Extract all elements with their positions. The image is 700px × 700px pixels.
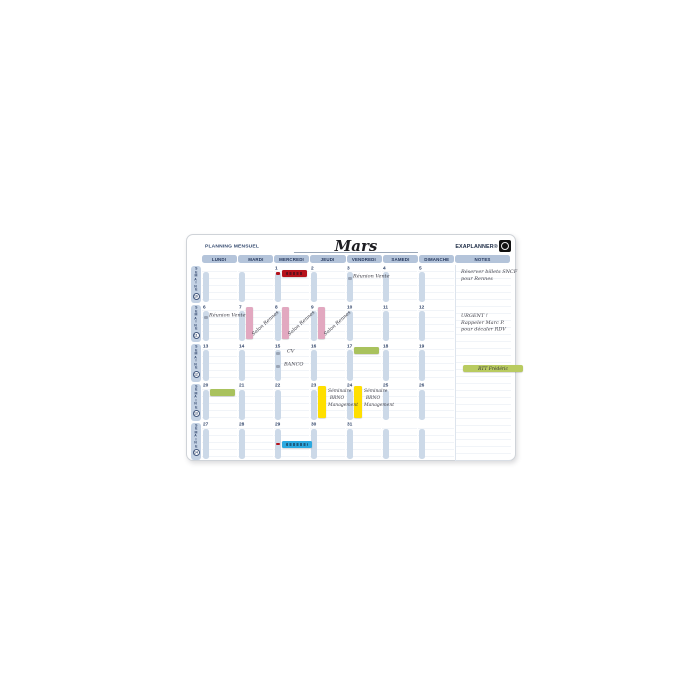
magnet-dot [276,365,280,368]
magnet-dot [276,352,280,355]
day-cell: 9Salon Rennes [310,304,345,342]
week-row: SEMAINE116Réunion Vente7Salon Rennes8Sal… [191,304,454,342]
day-cell [418,422,453,460]
week-label-letter: E [195,367,197,369]
date-strip [311,390,317,420]
day-number: 22 [275,383,280,388]
day-number: 7 [239,305,242,310]
day-cell: 3Réunion Vente [346,265,381,303]
week-label-letter: E [195,271,197,273]
week-label-letter: I [196,321,197,323]
week-label-letter: S [195,268,197,270]
day-number: 3 [347,266,350,271]
week-label-letter: I [196,360,197,362]
day-cell [238,265,273,303]
day-cell: 17 [346,343,381,381]
week-label-letter: M [195,275,198,277]
date-strip [419,390,425,420]
day-cell: 23SéminaireBRNOManagement [310,383,345,421]
week-label-letter: E [195,289,197,291]
planner-board: PLANNING MENSUEL Mars EXAPLANNER® LUNDIM… [186,234,516,461]
day-number: 18 [383,344,388,349]
day-header-label: VENDREDI [352,257,376,262]
date-strip [275,272,281,302]
day-cell: 4 [382,265,417,303]
day-header-label: MARDI [248,257,263,262]
day-header-mardi: MARDI [238,255,273,263]
product-photo-background: PLANNING MENSUEL Mars EXAPLANNER® LUNDIM… [0,0,700,700]
planner-type-label: PLANNING MENSUEL [205,243,259,249]
week-number-badge: 13 [193,410,200,417]
date-strip [239,350,245,380]
day-number: 12 [419,305,424,310]
handwritten-entry: BANCO [284,362,303,367]
week-strip: SEMAINE11 [191,305,201,342]
date-strip [203,429,209,459]
month-title-area: Mars [294,237,418,253]
note-magnet-label: RTT Frédéric [478,366,508,371]
day-cell: 16 [310,343,345,381]
handwritten-note: URGENT !Rappeler Marc P.pour décaler RDV [461,312,512,332]
date-strip [347,350,353,380]
exacompta-logo-icon [499,240,511,252]
week-label-letter: A [195,396,198,398]
magnet-dot [276,272,280,275]
handwritten-entry: Réunion Vente [353,274,390,279]
brand-area: EXAPLANNER® [427,240,511,252]
handwritten-note: Réserver billets SNCFpour Rennes [461,268,512,282]
day-number: 31 [347,422,352,427]
handwritten-entry: SéminaireBRNOManagement [328,387,346,409]
handwritten-entry: Réunion Vente [209,313,246,318]
day-number: 15 [275,344,280,349]
date-strip [419,429,425,459]
week-label-letter: N [195,442,198,444]
day-cell: 6Réunion Vente [202,304,237,342]
day-cell: 27 [202,422,237,460]
week-label-letter: E [195,328,197,330]
day-header-label: DIMANCHE [424,257,449,262]
event-magnet-bar [282,270,307,277]
illegible-text [286,443,308,446]
day-cell: 1 [274,265,309,303]
day-cell: 8Salon Rennes [274,304,309,342]
day-cell: 28 [238,422,273,460]
date-strip [203,350,209,380]
date-strip [203,272,209,302]
day-cell: 15CVBANCO [274,343,309,381]
week-label-letter: M [195,353,198,355]
week-number-badge: 12 [193,371,200,378]
brand-label: EXAPLANNER® [455,243,498,249]
week-label-letter: E [195,428,197,430]
day-cell: 14 [238,343,273,381]
handwritten-entry: SéminaireBRNOManagement [364,387,382,409]
day-cell [382,422,417,460]
day-number: 1 [275,266,278,271]
day-cell: 12 [418,304,453,342]
date-strip [383,311,389,341]
day-header-lundi: LUNDI [202,255,237,263]
day-number: 11 [383,305,388,310]
week-row: SEMAINE142728293031 [191,422,454,460]
day-number: 19 [419,344,424,349]
day-number: 17 [347,344,352,349]
day-cell: 19 [418,343,453,381]
day-cell: 21 [238,383,273,421]
week-label-letter: S [195,346,197,348]
week-number-badge: 11 [193,332,200,339]
week-label-letter: E [195,446,197,448]
event-magnet-bar [354,347,379,354]
day-number: 30 [311,422,316,427]
week-row: SEMAINE10123Réunion Vente45 [191,265,454,303]
day-cell: 13 [202,343,237,381]
week-row: SEMAINE1320212223SéminaireBRNOManagement… [191,383,454,421]
day-cell: 30 [310,422,345,460]
day-cell: 10 [346,304,381,342]
day-number: 5 [419,266,422,271]
day-header-notes: NOTES [455,255,510,263]
day-number: 13 [203,344,208,349]
event-magnet-strip [318,386,326,418]
notes-column: Réserver billets SNCFpour RennesURGENT !… [455,265,511,461]
day-header-label: LUNDI [212,257,226,262]
calendar-grid: SEMAINE10123Réunion Vente45SEMAINE116Réu… [191,265,511,461]
week-label-letter: N [195,285,198,287]
date-strip [419,350,425,380]
week-strip: SEMAINE12 [191,344,201,381]
week-column-spacer [191,255,201,263]
note-magnet: RTT Frédéric [463,365,523,372]
day-header-label: MERCREDI [279,257,304,262]
day-header-jeudi: JEUDI [310,255,345,263]
day-number: 2 [311,266,314,271]
handwritten-entry: CV [287,349,294,354]
week-number-badge: 14 [193,449,200,456]
day-cell: 2 [310,265,345,303]
week-row: SEMAINE12131415CVBANCO16171819 [191,343,454,381]
event-magnet-bar [282,441,312,448]
date-strip [311,272,317,302]
week-label-letter: A [195,435,198,437]
week-label-letter: I [196,282,197,284]
day-number: 4 [383,266,386,271]
weeks-area: SEMAINE10123Réunion Vente45SEMAINE116Réu… [191,265,454,461]
magnet-dot [348,277,352,280]
day-number: 26 [419,383,424,388]
week-label-letter: M [195,314,198,316]
day-header-label: JEUDI [321,257,335,262]
day-cell: 22 [274,383,309,421]
week-label-letter: E [195,406,197,408]
week-label-letter: N [195,403,198,405]
week-strip: SEMAINE13 [191,384,201,421]
week-label-letter: E [195,389,197,391]
day-number: 6 [203,305,206,310]
date-strip [383,429,389,459]
board-header: PLANNING MENSUEL Mars EXAPLANNER® [191,237,511,254]
day-header-samedi: SAMEDI [383,255,418,263]
day-header-label: SAMEDI [391,257,409,262]
day-number: 23 [311,383,316,388]
date-strip [383,350,389,380]
date-strip [347,429,353,459]
date-strip [419,272,425,302]
date-strip [239,272,245,302]
day-number: 16 [311,344,316,349]
day-cell: 31 [346,422,381,460]
day-cell: 26 [418,383,453,421]
day-header-mercredi: MERCREDI [274,255,309,263]
date-strip [311,350,317,380]
day-number: 14 [239,344,244,349]
day-header-row: LUNDIMARDIMERCREDIJEUDIVENDREDISAMEDIDIM… [191,255,511,263]
day-header-label: NOTES [475,257,491,262]
date-strip [275,390,281,420]
day-cell: 5 [418,265,453,303]
date-strip [239,429,245,459]
day-cell: 29 [274,422,309,460]
date-strip [311,429,317,459]
day-header-vendredi: VENDREDI [347,255,382,263]
day-cell: 18 [382,343,417,381]
week-strip: SEMAINE10 [191,266,201,303]
date-strip [419,311,425,341]
day-cell: 20 [202,383,237,421]
day-header-dimanche: DIMANCHE [419,255,454,263]
day-number: 20 [203,383,208,388]
illegible-text [286,272,303,275]
day-cell [202,265,237,303]
date-strip [203,390,209,420]
magnet-dot [204,316,208,319]
week-strip: SEMAINE14 [191,423,201,460]
event-magnet-bar [210,389,235,396]
day-number: 28 [239,422,244,427]
day-number: 21 [239,383,244,388]
day-number: 29 [275,422,280,427]
day-cell: 7Salon Rennes [238,304,273,342]
day-cell: 11 [382,304,417,342]
date-strip [239,390,245,420]
week-label-letter: S [195,307,197,309]
week-label-letter: A [195,278,198,280]
day-number: 27 [203,422,208,427]
week-number-badge: 10 [193,293,200,300]
